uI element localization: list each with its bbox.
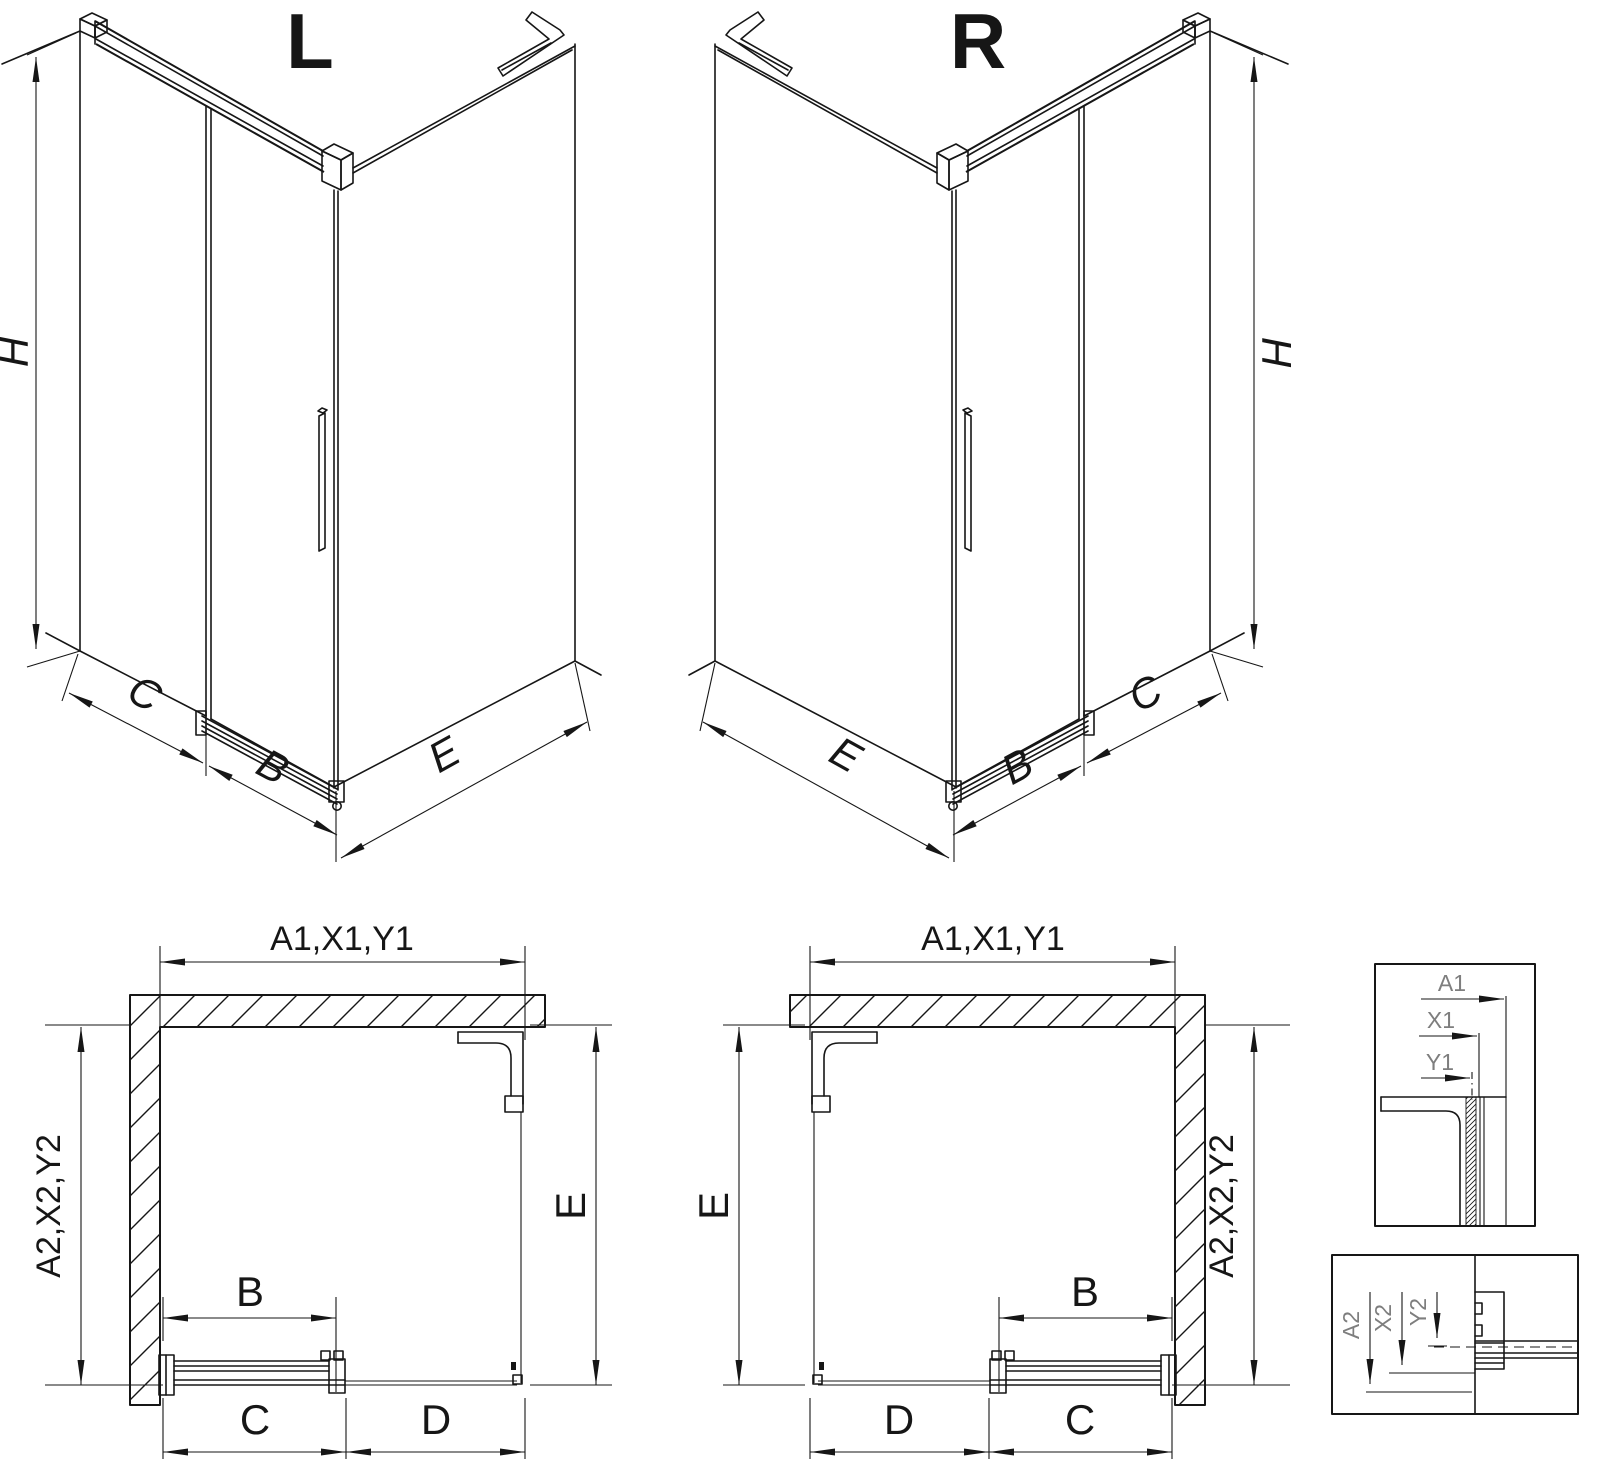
iso-left-title: L — [286, 0, 334, 85]
plan-left-dim-run-label: C — [240, 1396, 270, 1443]
plan-left-dim-side-label: E — [547, 1192, 594, 1220]
plan-right-dim-side-label: E — [690, 1192, 737, 1220]
plan-right-wall-hatch-side — [1175, 1027, 1205, 1405]
detail-bottom-label-x: X2 — [1370, 1304, 1396, 1332]
technical-drawing-canvas: L H C B E R H C B E A1,X1,Y1 A2,X2,Y2 E … — [0, 0, 1600, 1459]
plan-left-dim-opening-label: D — [421, 1396, 451, 1443]
detail-bottom-label-a: A2 — [1338, 1311, 1364, 1339]
sheet-background — [0, 0, 1600, 1459]
iso-right-title: R — [950, 0, 1006, 85]
drawing-sheet: L H C B E R H C B E A1,X1,Y1 A2,X2,Y2 E … — [0, 0, 1600, 1459]
plan-left-wall-hatch-side — [130, 1027, 160, 1405]
plan-right-dim-width-label: A1,X1,Y1 — [921, 920, 1065, 958]
iso-left-dim-height-label: H — [0, 336, 37, 367]
detail-top-label-x: X1 — [1427, 1007, 1455, 1033]
detail-bottom-label-y: Y2 — [1405, 1298, 1431, 1326]
plan-right-dim-run-label: C — [1065, 1396, 1095, 1443]
detail-top-label-y: Y1 — [1426, 1049, 1454, 1075]
plan-left-dim-depth-label: A2,X2,Y2 — [30, 1134, 68, 1278]
detail-top-glass-section — [1466, 1097, 1476, 1226]
detail-top-label-a: A1 — [1438, 970, 1466, 996]
plan-right-wall-hatch-top — [790, 995, 1205, 1027]
plan-right-dim-door-label: B — [1071, 1268, 1099, 1315]
iso-right-dim-height-label: H — [1253, 337, 1300, 368]
plan-right-dim-depth-label: A2,X2,Y2 — [1203, 1134, 1241, 1278]
plan-left-dim-width-label: A1,X1,Y1 — [270, 920, 414, 958]
plan-left-wall-hatch-top — [130, 995, 545, 1027]
plan-left-dim-door-label: B — [236, 1268, 264, 1315]
plan-right-dim-opening-label: D — [884, 1396, 914, 1443]
